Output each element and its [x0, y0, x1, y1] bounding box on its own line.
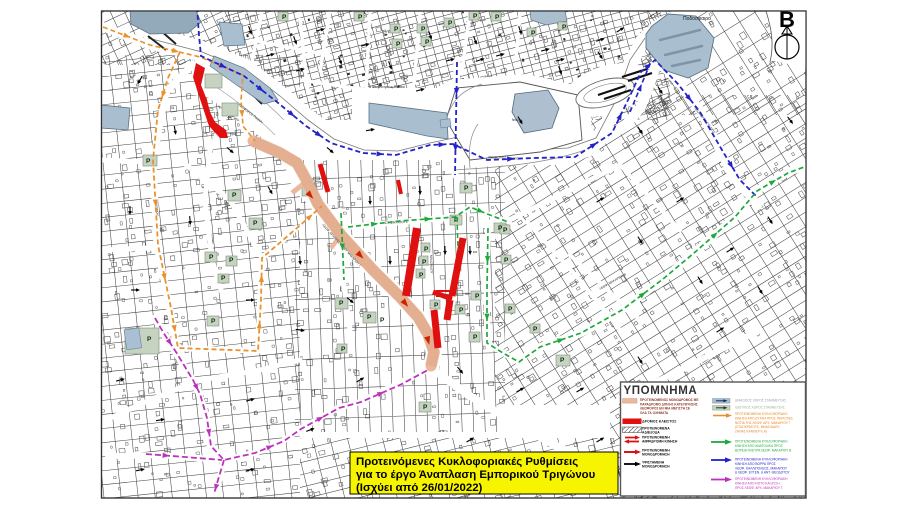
svg-text:P: P — [380, 317, 385, 324]
svg-text:P: P — [221, 275, 226, 282]
svg-text:P: P — [421, 26, 426, 33]
svg-text:P: P — [425, 39, 430, 46]
svg-text:P: P — [229, 257, 234, 264]
svg-text:P: P — [282, 14, 287, 21]
svg-text:P: P — [211, 318, 216, 325]
svg-text:P: P — [394, 26, 399, 33]
svg-text:P: P — [396, 41, 401, 48]
svg-text:P: P — [508, 306, 513, 313]
svg-text:ΙΔΙΩΤΙΚΟΣ ΧΩΡΟΣ ΣΤΑΘΜΕΥΣΗΣ: ΙΔΙΩΤΙΚΟΣ ΧΩΡΟΣ ΣΤΑΘΜΕΥΣΗΣ — [735, 406, 785, 410]
svg-text:ΠΡΟΤΕΙΝΟΜΕΝΗΜΟΝΟΔΡΟΜΗΣΗ: ΠΡΟΤΕΙΝΟΜΕΝΗΜΟΝΟΔΡΟΜΗΣΗ — [642, 449, 670, 457]
svg-text:P: P — [422, 259, 427, 266]
svg-text:P: P — [504, 257, 509, 264]
svg-text:P: P — [503, 227, 508, 234]
svg-text:P: P — [459, 307, 464, 314]
svg-text:Αναγεννησεως Πλατεια: Αναγεννησεως Πλατεια — [372, 85, 405, 89]
svg-text:P: P — [339, 300, 344, 307]
svg-text:P: P — [423, 404, 428, 411]
svg-text:Προτεινόμενες Κυκλοφοριακές Ρυ: Προτεινόμενες Κυκλοφοριακές Ρυθμίσεις — [356, 456, 578, 468]
svg-text:P: P — [473, 334, 478, 341]
svg-text:ΥΠΟΜΝΗΜΑ: ΥΠΟΜΝΗΜΑ — [624, 385, 698, 397]
svg-text:P: P — [358, 14, 363, 21]
svg-text:P: P — [419, 272, 424, 279]
svg-text:P: P — [562, 24, 567, 31]
svg-text:P: P — [560, 357, 565, 364]
svg-text:P: P — [341, 346, 346, 353]
svg-text:ΔΗΜΟΣΙΟΣ ΧΩΡΟΣ ΣΤΑΘΜΕΥΣΗΣ: ΔΗΜΟΣΙΟΣ ΧΩΡΟΣ ΣΤΑΘΜΕΥΣΗΣ — [735, 399, 786, 403]
svg-text:P: P — [232, 192, 237, 199]
svg-text:για το έργο Άναπλαση Εμπορικο: για το έργο Άναπλαση Εμπορικού Τριγώνου — [356, 469, 596, 481]
svg-text:ΠΡΟΤΕΙΝΟΜΕΝΗ ΚΥΚΛΟΦΟΡΙΑΚΗΚΙΝΗΣ: ΠΡΟΤΕΙΝΟΜΕΝΗ ΚΥΚΛΟΦΟΡΙΑΚΗΚΙΝΗΣΗ ΑΠΟ ΒΟΡΡ… — [735, 458, 790, 475]
svg-text:(Ισχύει από 26/01/2022): (Ισχύει από 26/01/2022) — [356, 482, 483, 494]
svg-text:Ποδοσφαιρο: Ποδοσφαιρο — [683, 16, 711, 22]
svg-text:P: P — [533, 326, 538, 333]
svg-text:P: P — [209, 254, 214, 261]
svg-text:ΔΡΟΜΟΣ ΚΛΕΙΣΤΟΣ: ΔΡΟΜΟΣ ΚΛΕΙΣΤΟΣ — [642, 420, 677, 424]
svg-text:P: P — [367, 314, 372, 321]
svg-text:P: P — [253, 220, 258, 227]
svg-text:P: P — [146, 158, 151, 165]
svg-text:ΜΝΑΣΙΑΔΟΥ: ΜΝΑΣΙΑΔΟΥ — [429, 255, 434, 275]
svg-text:P: P — [448, 20, 453, 27]
svg-text:P: P — [473, 13, 478, 20]
svg-text:P: P — [434, 302, 439, 309]
svg-text:P: P — [495, 14, 500, 21]
svg-text:P: P — [147, 336, 152, 343]
svg-text:P: P — [531, 30, 536, 37]
svg-text:P: P — [424, 246, 429, 253]
svg-text:P: P — [475, 293, 480, 300]
svg-text:P: P — [464, 185, 469, 192]
